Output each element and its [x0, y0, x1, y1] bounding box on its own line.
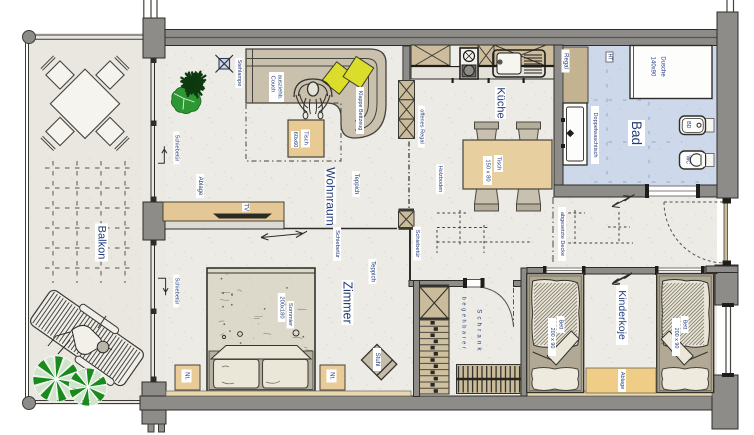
svg-text:Regal: Regal [563, 53, 569, 69]
svg-text:Teppich: Teppich [370, 261, 376, 282]
svg-text:Stehlampe: Stehlampe [236, 60, 242, 87]
svg-text:Bad: Bad [629, 121, 644, 145]
svg-text:150 x 80: 150 x 80 [484, 159, 490, 181]
svg-text:Ablage: Ablage [197, 177, 203, 196]
svg-text:Wohnraum: Wohnraum [324, 167, 338, 225]
svg-text:Couch: Couch [270, 76, 276, 93]
svg-text:TV: TV [243, 203, 249, 211]
svg-text:Dusche: Dusche [660, 56, 666, 77]
svg-text:Nt.: Nt. [184, 372, 190, 380]
svg-text:Bett: Bett [558, 320, 564, 330]
svg-text:Ablage: Ablage [619, 372, 625, 389]
svg-text:HT: HT [607, 54, 613, 61]
svg-text:Zimmer: Zimmer [341, 281, 355, 323]
svg-text:60x60: 60x60 [292, 132, 298, 148]
svg-text:200 x 90: 200 x 90 [673, 328, 679, 349]
svg-text:Schiebetür: Schiebetür [334, 230, 340, 258]
svg-text:abgesetzte Decke: abgesetzte Decke [559, 212, 565, 256]
svg-text:Bett: Bett [682, 320, 688, 330]
svg-text:Schiebetür: Schiebetür [414, 230, 420, 258]
svg-text:Schiebetür: Schiebetür [173, 135, 179, 162]
svg-text:Sommier: Sommier [287, 303, 293, 326]
svg-text:Kinderkoje: Kinderkoje [616, 290, 628, 340]
svg-text:Schrank: Schrank [475, 309, 481, 353]
svg-text:Holzboden: Holzboden [437, 166, 443, 193]
svg-text:Stuhl: Stuhl [374, 353, 380, 367]
svg-text:Tisch: Tisch [495, 157, 501, 171]
svg-text:Schiebetür: Schiebetür [173, 278, 179, 305]
svg-text:Klappe Bettzeug: Klappe Bettzeug [357, 91, 363, 131]
svg-text:Balkon: Balkon [96, 226, 108, 260]
svg-text:WC: WC [685, 155, 691, 164]
svg-text:ausziehb.: ausziehb. [277, 75, 283, 100]
svg-text:Tisch: Tisch [303, 131, 309, 145]
svg-text:140x90: 140x90 [650, 57, 656, 77]
svg-text:offenes Regal: offenes Regal [418, 109, 424, 143]
svg-text:Nt.: Nt. [329, 372, 335, 380]
svg-text:begehbarer: begehbarer [460, 297, 466, 352]
svg-text:Doppelwaschtisch: Doppelwaschtisch [592, 112, 598, 157]
svg-text:BD: BD [685, 121, 691, 128]
svg-text:200 x 90: 200 x 90 [549, 328, 555, 349]
svg-text:Teppich: Teppich [353, 174, 359, 195]
svg-text:Küche: Küche [495, 87, 507, 118]
svg-text:200x180: 200x180 [278, 296, 284, 318]
